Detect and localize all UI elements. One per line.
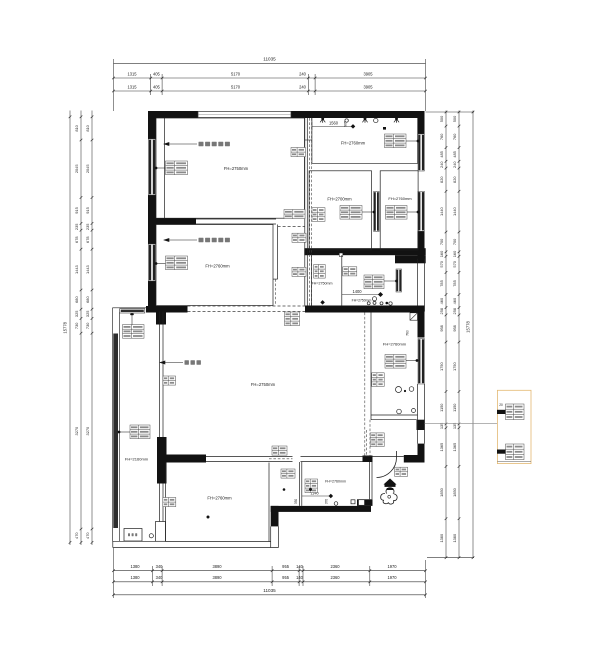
svg-text:240: 240 xyxy=(439,161,444,168)
svg-text:3270: 3270 xyxy=(74,426,79,435)
svg-text:5170: 5170 xyxy=(231,71,241,76)
svg-text:810: 810 xyxy=(74,124,79,131)
svg-text:700: 700 xyxy=(452,238,457,245)
svg-text:1365: 1365 xyxy=(452,443,457,452)
svg-text:235: 235 xyxy=(85,224,90,231)
svg-text:810: 810 xyxy=(85,124,90,131)
svg-text:760: 760 xyxy=(452,133,457,140)
svg-text:140: 140 xyxy=(296,575,304,580)
svg-text:160: 160 xyxy=(439,250,444,257)
svg-text:15778: 15778 xyxy=(63,321,68,333)
svg-text:958: 958 xyxy=(452,325,457,332)
svg-text:15778: 15778 xyxy=(466,321,471,333)
svg-text:1380: 1380 xyxy=(452,533,457,542)
svg-text:1750: 1750 xyxy=(452,362,457,371)
svg-text:958: 958 xyxy=(439,325,444,332)
svg-text:2045: 2045 xyxy=(85,164,90,173)
svg-text:470: 470 xyxy=(85,532,90,539)
svg-text:235: 235 xyxy=(74,224,79,231)
svg-text:340: 340 xyxy=(156,564,164,569)
svg-text:785: 785 xyxy=(452,280,457,287)
svg-text:FH=2760mm: FH=2760mm xyxy=(325,480,346,484)
svg-text:FH=2700mm: FH=2700mm xyxy=(327,197,352,202)
svg-text:3905: 3905 xyxy=(363,71,373,76)
svg-text:570: 570 xyxy=(439,260,444,267)
svg-text:240: 240 xyxy=(452,161,457,168)
svg-text:460: 460 xyxy=(439,297,444,304)
svg-text:1150: 1150 xyxy=(439,403,444,412)
svg-text:3905: 3905 xyxy=(363,84,373,89)
svg-text:FH=2750mm: FH=2750mm xyxy=(312,282,333,286)
svg-text:330: 330 xyxy=(294,499,298,505)
svg-text:370: 370 xyxy=(325,499,329,505)
svg-text:460: 460 xyxy=(452,297,457,304)
svg-text:1970: 1970 xyxy=(387,575,397,580)
svg-text:240: 240 xyxy=(299,71,307,76)
svg-text:1970: 1970 xyxy=(387,564,397,569)
svg-text:20: 20 xyxy=(499,403,503,407)
svg-text:1750: 1750 xyxy=(439,362,444,371)
svg-text:FH=2160mm: FH=2160mm xyxy=(125,457,149,462)
svg-text:955: 955 xyxy=(282,564,290,569)
svg-text:FH=2750mm: FH=2750mm xyxy=(224,166,249,171)
svg-text:678: 678 xyxy=(85,236,90,243)
svg-text:FH=2760mm: FH=2760mm xyxy=(383,342,407,347)
svg-text:470: 470 xyxy=(74,532,79,539)
svg-text:FH=2760mm: FH=2760mm xyxy=(388,196,412,201)
svg-text:915: 915 xyxy=(85,207,90,214)
svg-text:135: 135 xyxy=(439,423,444,430)
svg-text:1365: 1365 xyxy=(439,443,444,452)
svg-text:1440: 1440 xyxy=(439,206,444,215)
svg-text:1380: 1380 xyxy=(130,575,140,580)
svg-text:1380: 1380 xyxy=(130,564,140,569)
svg-text:FH=2760mm: FH=2760mm xyxy=(207,496,232,501)
svg-text:258: 258 xyxy=(452,308,457,315)
svg-text:760: 760 xyxy=(406,330,410,336)
svg-text:1443: 1443 xyxy=(74,265,79,274)
svg-text:FH=2750mm: FH=2750mm xyxy=(251,382,276,387)
svg-text:1400: 1400 xyxy=(352,289,362,294)
svg-text:820: 820 xyxy=(452,176,457,183)
svg-text:325: 325 xyxy=(74,311,79,318)
svg-text:485: 485 xyxy=(439,151,444,158)
svg-text:258: 258 xyxy=(439,308,444,315)
svg-text:730: 730 xyxy=(74,322,79,329)
svg-text:2045: 2045 xyxy=(74,164,79,173)
svg-text:11035: 11035 xyxy=(263,588,276,593)
svg-text:340: 340 xyxy=(156,575,164,580)
svg-text:570: 570 xyxy=(452,260,457,267)
svg-text:1150: 1150 xyxy=(452,403,457,412)
svg-text:405: 405 xyxy=(153,71,161,76)
svg-text:FH=2760mm: FH=2760mm xyxy=(205,264,230,269)
svg-text:1850: 1850 xyxy=(439,487,444,496)
svg-text:700: 700 xyxy=(439,238,444,245)
svg-text:500: 500 xyxy=(452,115,457,122)
svg-text:680: 680 xyxy=(85,296,90,303)
svg-text:730: 730 xyxy=(85,322,90,329)
svg-text:785: 785 xyxy=(439,280,444,287)
svg-text:1380: 1380 xyxy=(439,533,444,542)
svg-text:405: 405 xyxy=(153,84,161,89)
svg-text:11035: 11035 xyxy=(263,57,276,62)
svg-text:FH=2760mm: FH=2760mm xyxy=(341,141,366,146)
svg-text:160: 160 xyxy=(452,250,457,257)
svg-text:240: 240 xyxy=(299,84,307,89)
svg-text:1440: 1440 xyxy=(452,206,457,215)
svg-text:3890: 3890 xyxy=(212,575,222,580)
svg-text:500: 500 xyxy=(439,115,444,122)
svg-text:915: 915 xyxy=(74,207,79,214)
svg-text:3890: 3890 xyxy=(212,564,222,569)
svg-text:678: 678 xyxy=(74,236,79,243)
svg-text:135: 135 xyxy=(452,423,457,430)
svg-text:1850: 1850 xyxy=(452,487,457,496)
svg-text:485: 485 xyxy=(452,151,457,158)
svg-text:1560: 1560 xyxy=(329,121,339,126)
svg-text:1315: 1315 xyxy=(127,71,137,76)
svg-text:1443: 1443 xyxy=(85,265,90,274)
svg-text:5170: 5170 xyxy=(231,84,241,89)
svg-text:3270: 3270 xyxy=(85,426,90,435)
svg-text:820: 820 xyxy=(439,176,444,183)
svg-text:1315: 1315 xyxy=(127,84,137,89)
svg-text:2360: 2360 xyxy=(330,575,340,580)
svg-text:760: 760 xyxy=(439,133,444,140)
svg-text:325: 325 xyxy=(85,311,90,318)
svg-text:955: 955 xyxy=(282,575,290,580)
svg-text:2360: 2360 xyxy=(330,564,340,569)
svg-text:680: 680 xyxy=(74,296,79,303)
svg-text:140: 140 xyxy=(296,564,304,569)
